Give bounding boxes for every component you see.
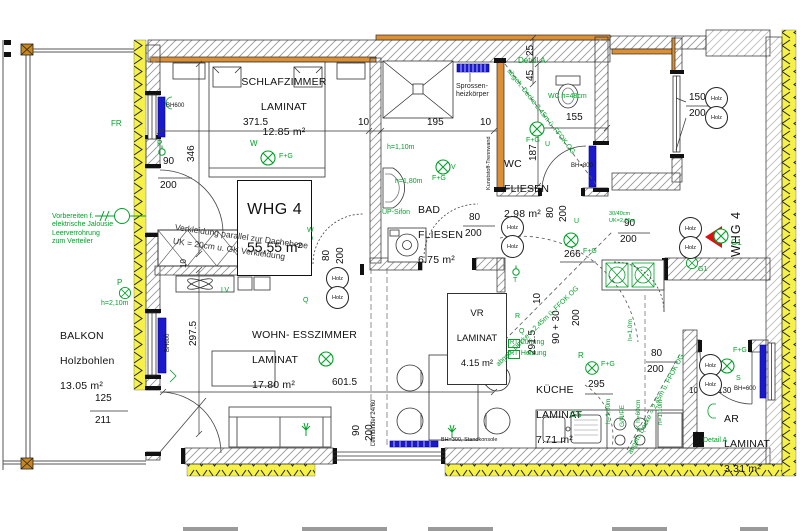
lamp-icon xyxy=(530,122,544,136)
annotation-h180: h=1,80m xyxy=(395,178,422,186)
dim-v45: 45 xyxy=(525,70,537,81)
dim-schlaf-tiefe: 346 xyxy=(186,145,198,162)
lamp-label-fg: F+G xyxy=(279,153,293,161)
lamp-label-fg: F+G xyxy=(733,347,747,355)
dim-flur-b: 200 xyxy=(571,309,583,326)
switch-label-lv: LV xyxy=(221,287,229,295)
switch-label-q: Q xyxy=(303,297,308,305)
dim-stiegenfenster-h: 200 xyxy=(689,108,706,120)
dim-tuer-ar-h: 200 xyxy=(647,364,664,376)
dim-wohn-tiefe: 297.5 xyxy=(188,321,200,346)
dim-wand: 10 xyxy=(358,117,369,129)
dim-bad-breite: 195 xyxy=(427,117,444,129)
room-area: 6.75 m² xyxy=(418,254,463,266)
switch-label-p: P xyxy=(117,278,122,287)
room-label-vr: VR LAMINAT 4.15 m² xyxy=(447,293,507,385)
radiator-label: BH600 xyxy=(165,334,172,352)
room-name: SCHLAFZIMMER xyxy=(225,76,343,88)
switch-label-w: W xyxy=(307,227,314,235)
apartment-entry-label: WHG 4 xyxy=(729,211,744,257)
rt-box: RT xyxy=(508,350,520,359)
annotation-uk2: UK=2,05m xyxy=(609,218,635,224)
lamp-label-fg: F+G xyxy=(432,175,446,183)
annotation-wc-hocke: WC h=48cm xyxy=(548,93,587,101)
balcony-posts xyxy=(4,40,33,469)
dim-schlafzimmer-breite: 371.5 xyxy=(243,117,268,129)
dim-kueche-breite: 295 xyxy=(588,379,605,391)
annotation-h180-kueche: h=1,80m xyxy=(605,399,613,424)
material-circle: Holz xyxy=(501,235,524,258)
dim-tuer-wc-b: 80 xyxy=(545,207,557,218)
annotation-h210: h=2,10m xyxy=(101,300,128,308)
room-name: WOHN- ESSZIMMER xyxy=(252,329,357,341)
lamp-icon xyxy=(586,362,599,375)
dim-wand: 10 xyxy=(532,293,544,304)
radiator-label: BH=300, Standkonsole xyxy=(441,437,497,443)
dim-wand: 10 xyxy=(179,259,188,268)
switch-label-r: R xyxy=(515,313,520,321)
dim-wc-tiefe: 187 xyxy=(528,144,540,161)
room-name: BALKON xyxy=(60,330,115,342)
lamp-icon xyxy=(261,151,275,165)
dim-wand: 10 xyxy=(480,117,491,129)
radiator-label-sprossen: Sprossen- heizkörper xyxy=(456,83,489,100)
room-label-bad: BAD FLIESEN 6.75 m² xyxy=(418,192,463,279)
lamp-label-fg: F+G xyxy=(601,361,615,369)
lamp-icon xyxy=(436,160,450,174)
lamp-label-fg: F+G xyxy=(583,248,597,256)
room-name: KÜCHE xyxy=(536,384,582,396)
socket-icon xyxy=(513,266,519,276)
annotation-h110: h=1,10m xyxy=(387,144,414,152)
dim-tuer-wc-h: 200 xyxy=(558,205,570,222)
lamp-icon xyxy=(714,229,728,243)
cut-off-text xyxy=(183,527,768,531)
rt-text: Lüftung xyxy=(521,339,544,346)
dim-wc-breite: 155 xyxy=(566,112,583,124)
annotation-leimbinder: Leimbinder 24/60 xyxy=(371,400,378,446)
room-floor: LAMINAT xyxy=(252,354,357,366)
radiator-label: BH=600 xyxy=(734,386,756,393)
dim-tuer-korridor-b: 80 xyxy=(321,250,333,261)
switch-label-w: W xyxy=(250,139,258,148)
dim-balkontuer-h: 211 xyxy=(95,415,111,427)
room-area: 13.05 m² xyxy=(60,380,115,392)
room-floor: LAMINAT xyxy=(724,438,770,450)
material-circle: Holz xyxy=(699,373,722,396)
room-name: BAD xyxy=(418,204,463,216)
annotation-up-sifon: UP-Sifon xyxy=(382,209,410,217)
apartment-name: WHG 4 xyxy=(247,201,302,220)
room-area: 3.31 m² xyxy=(724,463,770,475)
switch-label-r: R xyxy=(578,351,584,360)
annotation-h10: h=1,0m xyxy=(627,319,635,341)
dim-tuer-ar-b: 80 xyxy=(651,348,662,360)
dim-v25: 25 xyxy=(525,45,537,56)
switch-label-u: U xyxy=(574,218,579,226)
lamp-icon xyxy=(686,257,697,268)
floor-plan: SCHLAFZIMMER LAMINAT 12.85 m² BAD FLIESE… xyxy=(0,0,809,531)
lamp-icon xyxy=(720,359,734,373)
room-name: VR xyxy=(452,308,502,320)
annotation-rt-heizung: RTHeizung xyxy=(508,350,547,359)
room-label-wohn-esszimmer: WOHN- ESSZIMMER LAMINAT 17.80 m² xyxy=(252,317,357,404)
lamp-icon xyxy=(564,233,578,247)
room-area: 7.71 m² xyxy=(536,434,582,446)
room-label-schlafzimmer: SCHLAFZIMMER LAMINAT 12.85 m² xyxy=(225,64,343,151)
dim-tuer-bad-h: 200 xyxy=(465,228,482,240)
rt-text: Heizung xyxy=(521,350,547,357)
room-floor: LAMINAT xyxy=(225,101,343,113)
room-area: 4.15 m² xyxy=(452,358,502,370)
room-floor: LAMINAT xyxy=(452,333,502,345)
dim-tuer-eingang-h: 200 xyxy=(620,234,637,246)
annotation-h110-kueche: h=1,10m xyxy=(657,400,665,425)
annotation-gs: GS xyxy=(570,410,582,419)
room-name: WC xyxy=(504,158,549,170)
radiator-label: BH600 xyxy=(166,103,184,110)
dim-wohn-breite: 601.5 xyxy=(332,377,357,389)
switch-label-p: P xyxy=(157,139,162,148)
dim-266: 266 xyxy=(564,249,581,261)
room-floor: Holzbohlen xyxy=(60,355,115,367)
room-floor: FLIESEN xyxy=(504,183,549,195)
switch-label-s: S xyxy=(736,375,741,383)
dim-ar-a: 10 xyxy=(689,386,698,395)
dim-balkontuer-b: 125 xyxy=(95,393,112,405)
room-floor: FLIESEN xyxy=(418,229,463,241)
room-name: AR xyxy=(724,413,770,425)
dim-fenster-wohn-b: 90 xyxy=(351,425,363,436)
material-circle: Holz xyxy=(679,236,702,259)
annotation-uk1: 30/40cm xyxy=(609,211,630,217)
annotation-kh60: K h=60cm xyxy=(635,400,643,429)
annotation-jalousie: Vorbereiten f. elektrische Jalousie Leer… xyxy=(52,213,113,246)
dim-stiegenfenster-b: 150 xyxy=(689,92,706,104)
rt-box: RT xyxy=(508,339,520,348)
room-label-balkon: BALKON Holzbohlen 13.05 m² xyxy=(60,318,115,405)
switch-label-q: Q xyxy=(519,328,524,336)
annotation-kunststoff-trennwand: Kunststoff-Trennwand xyxy=(486,136,492,190)
lamp-icon xyxy=(119,287,130,298)
annotation-gnpe: G/N/PE xyxy=(619,405,627,427)
lamp-label-g1: G1 xyxy=(731,238,742,247)
radiator-label: BH=800 xyxy=(571,163,593,170)
dim-tuer-bad-b: 80 xyxy=(469,212,480,224)
lamp-label-g1: G1 xyxy=(698,266,707,274)
dim-tuer-korridor-h: 200 xyxy=(335,247,347,264)
material-circle: Holz xyxy=(705,106,728,129)
floor-plan-drawing xyxy=(0,0,809,531)
annotation-detail-a: Detail A xyxy=(703,437,727,445)
dim-tuer-schlaf-b: 90 xyxy=(163,156,174,168)
room-label-ar: AR LAMINAT 3.31 m² xyxy=(724,401,770,488)
annotation-rt-lueftung: RTLüftung xyxy=(508,339,544,348)
material-circle: Holz xyxy=(326,286,349,309)
dim-tuer-schlaf-h: 200 xyxy=(160,180,177,192)
switch-label-u: U xyxy=(545,141,550,149)
switch-label-t: T xyxy=(513,277,517,285)
balcony-railing xyxy=(3,40,146,470)
lamp-label-fg: F+G xyxy=(526,137,540,145)
annotation-detail-a: Detail A xyxy=(518,56,546,65)
switch-label-v: V xyxy=(451,164,456,172)
switch-label-fr: FR xyxy=(111,119,122,128)
